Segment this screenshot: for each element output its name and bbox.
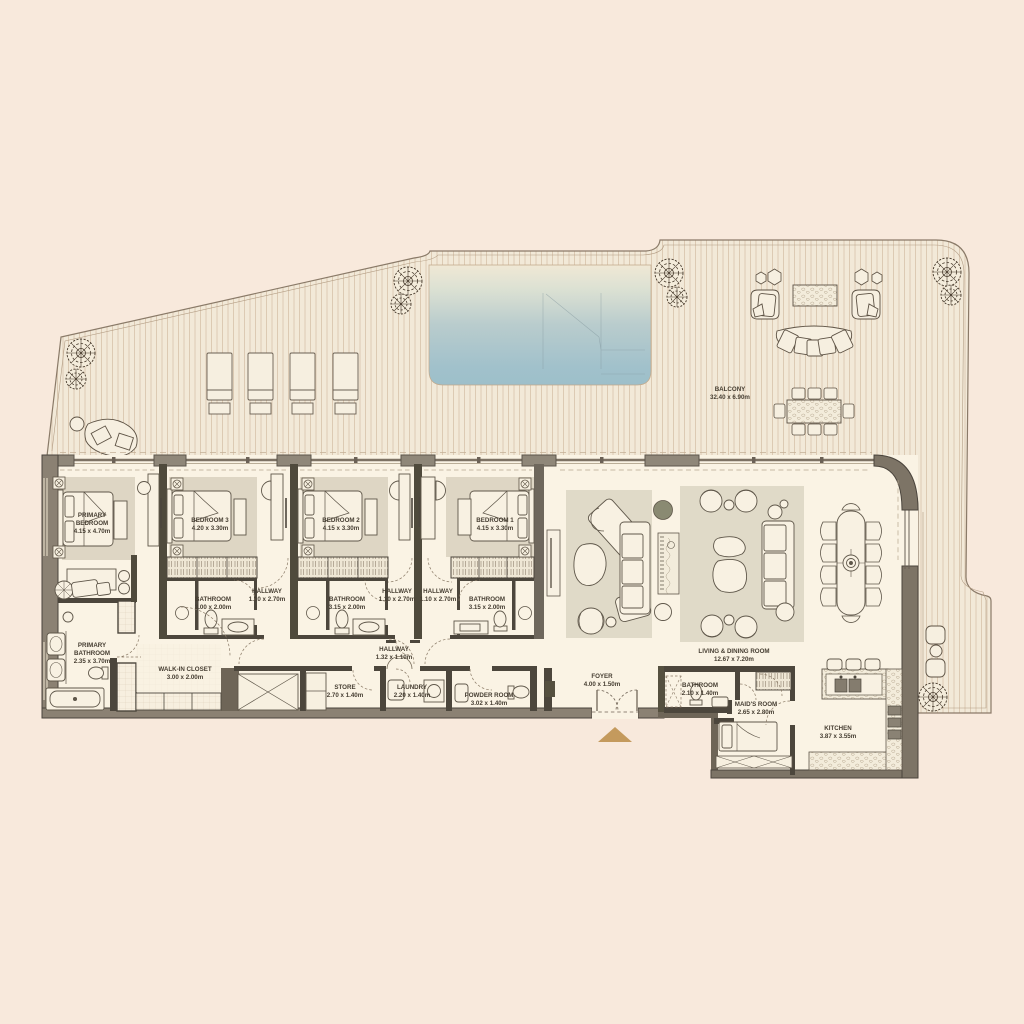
svg-text:2.70 x 1.40m: 2.70 x 1.40m <box>327 692 364 699</box>
svg-text:BATHROOM: BATHROOM <box>74 650 110 657</box>
svg-text:STORE: STORE <box>334 684 355 691</box>
svg-text:3.02 x 1.40m: 3.02 x 1.40m <box>471 700 508 707</box>
svg-text:BATHROOM: BATHROOM <box>469 596 505 603</box>
svg-text:4.15 x 4.70m: 4.15 x 4.70m <box>74 528 111 535</box>
svg-text:3.15 x 2.00m: 3.15 x 2.00m <box>329 604 366 611</box>
svg-text:HALLWAY: HALLWAY <box>382 588 413 595</box>
svg-text:BATHROOM: BATHROOM <box>329 596 365 603</box>
svg-text:FOYER: FOYER <box>591 673 613 680</box>
svg-text:2.10 x 1.40m: 2.10 x 1.40m <box>682 690 719 697</box>
svg-text:1.10 x 2.70m: 1.10 x 2.70m <box>249 596 286 603</box>
svg-text:4.15 x 3.30m: 4.15 x 3.30m <box>323 525 360 532</box>
svg-text:BEDROOM 1: BEDROOM 1 <box>476 517 514 524</box>
svg-text:BATHROOM: BATHROOM <box>195 596 231 603</box>
svg-text:LIVING & DINING ROOM: LIVING & DINING ROOM <box>698 648 769 655</box>
svg-text:4.00 x 1.50m: 4.00 x 1.50m <box>584 681 621 688</box>
svg-text:1.10 x 2.70m: 1.10 x 2.70m <box>379 596 416 603</box>
svg-text:2.65 x 2.80m: 2.65 x 2.80m <box>738 709 775 716</box>
svg-text:HALLWAY: HALLWAY <box>252 588 283 595</box>
svg-text:1.32 x 1.10m: 1.32 x 1.10m <box>376 654 413 661</box>
svg-text:4.20 x 3.30m: 4.20 x 3.30m <box>192 525 229 532</box>
svg-text:3.87 x 3.55m: 3.87 x 3.55m <box>820 733 857 740</box>
svg-text:WALK-IN CLOSET: WALK-IN CLOSET <box>158 666 211 673</box>
svg-text:4.15 x 3.30m: 4.15 x 3.30m <box>477 525 514 532</box>
svg-text:3.00 x 2.00m: 3.00 x 2.00m <box>167 674 204 681</box>
svg-text:12.67 x 7.20m: 12.67 x 7.20m <box>714 656 754 663</box>
svg-text:3.15 x 2.00m: 3.15 x 2.00m <box>469 604 506 611</box>
svg-text:HALLWAY: HALLWAY <box>379 646 410 653</box>
svg-text:BEDROOM: BEDROOM <box>76 520 108 527</box>
svg-text:2.20 x 1.40m: 2.20 x 1.40m <box>394 692 431 699</box>
svg-text:KITCHEN: KITCHEN <box>824 725 852 732</box>
svg-text:2.35 x 3.70m: 2.35 x 3.70m <box>74 658 111 665</box>
svg-text:BALCONY: BALCONY <box>715 386 746 393</box>
svg-text:POWDER ROOM: POWDER ROOM <box>465 692 514 699</box>
svg-text:32.40 x 6.90m: 32.40 x 6.90m <box>710 394 750 401</box>
svg-text:HALLWAY: HALLWAY <box>423 588 454 595</box>
svg-text:PRIMARY: PRIMARY <box>78 512 107 519</box>
svg-text:BEDROOM 3: BEDROOM 3 <box>191 517 229 524</box>
svg-text:MAID'S ROOM: MAID'S ROOM <box>735 701 777 708</box>
svg-text:3.00 x 2.00m: 3.00 x 2.00m <box>195 604 232 611</box>
svg-text:BEDROOM 2: BEDROOM 2 <box>322 517 360 524</box>
svg-text:BATHROOM: BATHROOM <box>682 682 718 689</box>
svg-text:1.10 x 2.70m: 1.10 x 2.70m <box>420 596 457 603</box>
svg-text:PRIMARY: PRIMARY <box>78 642 107 649</box>
svg-text:LAUNDRY: LAUNDRY <box>397 684 428 691</box>
